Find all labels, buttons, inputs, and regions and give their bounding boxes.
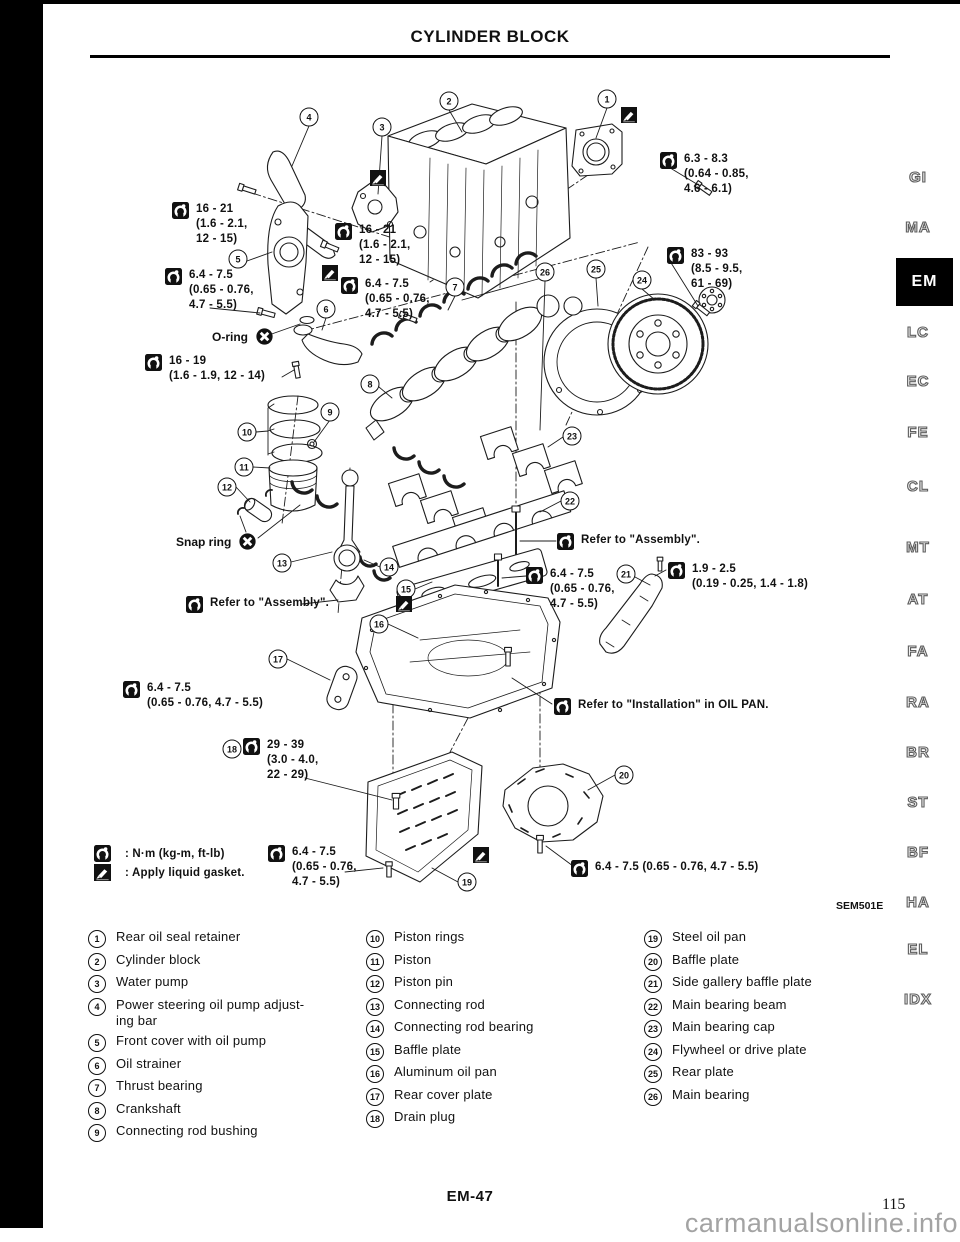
parts-list-item: 12 Piston pin — [366, 974, 644, 993]
section-tab-label: MT — [906, 539, 930, 556]
part-label: Thrust bearing — [116, 1078, 203, 1095]
torque-wrench-icon — [668, 562, 685, 579]
part-number-badge: 11 — [366, 953, 384, 971]
liquid-gasket-icon — [396, 596, 412, 612]
part-number-badge: 22 — [644, 998, 662, 1016]
section-tab: EM — [896, 258, 953, 306]
part-callout: 4 — [300, 108, 319, 127]
part-callout-number: 13 — [277, 558, 287, 568]
torque-spec-label: 6.4 - 7.5 (0.65 - 0.76, 4.7 - 5.5) — [341, 277, 430, 322]
torque-spec-text: 16 - 19 (1.6 - 1.9, 12 - 14) — [169, 354, 265, 384]
parts-list-column-1: 1 Rear oil seal retainer 2 Cylinder bloc… — [88, 929, 366, 1146]
part-label: Baffle plate — [394, 1042, 461, 1059]
part-callout-number: 24 — [637, 275, 647, 285]
liquid-gasket-icon — [621, 107, 637, 123]
part-label: Connecting rod — [394, 997, 485, 1014]
part-callout-number: 4 — [306, 112, 311, 122]
torque-spec-text: 6.4 - 7.5 (0.65 - 0.76, 4.7 - 5.5) — [189, 268, 254, 313]
torque-spec-text: 6.3 - 8.3 (0.64 - 0.85, 4.6 - 6.1) — [684, 152, 749, 197]
page-title: CYLINDER BLOCK — [90, 27, 890, 47]
parts-list-item: 21 Side gallery baffle plate — [644, 974, 944, 993]
part-label: Water pump — [116, 974, 188, 991]
parts-list-item: 17 Rear cover plate — [366, 1087, 644, 1106]
section-tab: ST — [893, 794, 943, 811]
torque-wrench-icon — [571, 860, 588, 877]
torque-spec-label: 6.4 - 7.5 (0.65 - 0.76, 4.7 - 5.5) — [571, 860, 758, 877]
liquid-gasket-icon — [370, 170, 386, 186]
part-callout: 8 — [361, 375, 380, 394]
part-label: Rear cover plate — [394, 1087, 493, 1104]
part-callout-number: 6 — [323, 304, 328, 314]
torque-spec-text: 16 - 21 (1.6 - 2.1, 12 - 15) — [359, 223, 410, 268]
liquid-gasket-icon — [473, 847, 489, 863]
torque-spec-text: 6.4 - 7.5 (0.65 - 0.76, 4.7 - 5.5) — [595, 860, 758, 875]
parts-list-item: 26 Main bearing — [644, 1087, 944, 1106]
part-label: Connecting rod bearing — [394, 1019, 534, 1036]
part-label: Main bearing — [672, 1087, 750, 1104]
part-callout: 23 — [563, 427, 582, 446]
part-number-badge: 4 — [88, 998, 106, 1016]
part-label: Main bearing beam — [672, 997, 787, 1014]
torque-wrench-icon — [94, 845, 111, 862]
part-callout: 12 — [218, 478, 237, 497]
part-label: Cylinder block — [116, 952, 200, 969]
parts-list-item: 5 Front cover with oil pump — [88, 1033, 366, 1052]
torque-wrench-icon — [172, 202, 189, 219]
watermark: carmanualsonline.info — [0, 1208, 958, 1239]
part-callout-number: 23 — [567, 431, 577, 441]
part-callout: 19 — [458, 873, 477, 892]
part-label: Piston — [394, 952, 431, 969]
part-callout: 20 — [615, 766, 634, 785]
section-tab-label: CL — [907, 478, 929, 495]
section-tab: RA — [893, 694, 943, 711]
torque-wrench-icon — [268, 845, 285, 862]
part-callout-number: 17 — [273, 654, 283, 664]
part-note-label: O-ring — [212, 328, 273, 345]
part-callout: 25 — [587, 260, 606, 279]
torque-wrench-icon — [186, 596, 203, 613]
parts-list-item: 16 Aluminum oil pan — [366, 1064, 644, 1083]
part-label: Front cover with oil pump — [116, 1033, 266, 1050]
part-callout: 5 — [229, 250, 248, 269]
part-number-badge: 15 — [366, 1043, 384, 1061]
part-callout-number: 7 — [452, 282, 457, 292]
parts-list-item: 6 Oil strainer — [88, 1056, 366, 1075]
part-number-badge: 2 — [88, 953, 106, 971]
part-number-badge: 19 — [644, 930, 662, 948]
section-tab: BR — [893, 744, 943, 761]
parts-list-item: 23 Main bearing cap — [644, 1019, 944, 1038]
part-callout: 13 — [273, 554, 292, 573]
part-callout: 1 — [598, 90, 617, 109]
part-callout: 26 — [536, 263, 555, 282]
part-number-badge: 26 — [644, 1088, 662, 1106]
section-tab-label: FE — [907, 424, 928, 441]
section-tab-label: EM — [912, 273, 938, 290]
part-number-badge: 1 — [88, 930, 106, 948]
parts-list-item: 24 Flywheel or drive plate — [644, 1042, 944, 1061]
liquid-gasket-icon — [94, 864, 111, 881]
part-callout-number: 5 — [235, 254, 240, 264]
torque-wrench-icon — [526, 567, 543, 584]
parts-list: 1 Rear oil seal retainer 2 Cylinder bloc… — [88, 929, 944, 1146]
torque-wrench-icon — [341, 277, 358, 294]
part-callout: 9 — [321, 403, 340, 422]
torque-wrench-icon — [145, 354, 162, 371]
torque-wrench-icon — [660, 152, 677, 169]
part-callout: 22 — [561, 492, 580, 511]
part-label: Piston rings — [394, 929, 464, 946]
parts-list-column-3: 19 Steel oil pan 20 Baffle plate 21 Side… — [644, 929, 944, 1146]
torque-wrench-icon — [554, 698, 571, 715]
torque-spec-label: 83 - 93 (8.5 - 9.5, 61 - 69) — [667, 247, 742, 292]
torque-spec-label: 16 - 21 (1.6 - 2.1, 12 - 15) — [335, 223, 410, 268]
parts-list-item: 20 Baffle plate — [644, 952, 944, 971]
part-callout-number: 22 — [565, 496, 575, 506]
liquid-gasket-icon — [322, 265, 338, 281]
part-callout: 24 — [633, 271, 652, 290]
section-tab-label: ST — [907, 794, 928, 811]
parts-list-item: 4 Power steering oil pump adjust- ing ba… — [88, 997, 366, 1030]
part-number-badge: 5 — [88, 1034, 106, 1052]
part-label: Aluminum oil pan — [394, 1064, 497, 1081]
parts-list-item: 14 Connecting rod bearing — [366, 1019, 644, 1038]
part-number-badge: 23 — [644, 1020, 662, 1038]
torque-spec-text: Refer to "Assembly". — [210, 596, 329, 611]
section-tab: FA — [893, 643, 943, 660]
scan-edge-top — [0, 0, 960, 4]
part-callout-number: 15 — [401, 584, 411, 594]
part-callout: 18 — [223, 740, 242, 759]
torque-legend-text: : N·m (kg-m, ft-lb) — [125, 848, 245, 860]
part-label: Drain plug — [394, 1109, 455, 1126]
part-callout: 3 — [373, 118, 392, 137]
parts-list-item: 25 Rear plate — [644, 1064, 944, 1083]
part-label: Steel oil pan — [672, 929, 746, 946]
torque-wrench-icon — [557, 533, 574, 550]
part-callout-number: 12 — [222, 482, 232, 492]
parts-list-item: 13 Connecting rod — [366, 997, 644, 1016]
torque-wrench-icon — [667, 247, 684, 264]
part-callout-number: 26 — [540, 267, 550, 277]
parts-list-item: 9 Connecting rod bushing — [88, 1123, 366, 1142]
torque-spec-text: 29 - 39 (3.0 - 4.0, 22 - 29) — [267, 738, 318, 783]
torque-spec-label: 16 - 19 (1.6 - 1.9, 12 - 14) — [145, 354, 265, 384]
torque-spec-label: 29 - 39 (3.0 - 4.0, 22 - 29) — [243, 738, 318, 783]
section-tab: BF — [893, 844, 943, 861]
part-callout: 11 — [235, 458, 254, 477]
part-label: Rear plate — [672, 1064, 734, 1081]
section-tab: HA — [893, 894, 943, 911]
part-number-badge: 7 — [88, 1079, 106, 1097]
torque-wrench-icon — [243, 738, 260, 755]
parts-list-column-2: 10 Piston rings 11 Piston 12 Piston pin … — [366, 929, 644, 1146]
torque-spec-label: 6.4 - 7.5 (0.65 - 0.76, 4.7 - 5.5) — [268, 845, 357, 890]
part-label: Power steering oil pump adjust- ing bar — [116, 997, 304, 1030]
parts-list-item: 3 Water pump — [88, 974, 366, 993]
part-callout-number: 11 — [239, 462, 249, 472]
part-label: Piston pin — [394, 974, 453, 991]
part-number-badge: 9 — [88, 1124, 106, 1142]
section-tab: LC — [893, 324, 943, 341]
torque-spec-label: 6.4 - 7.5 (0.65 - 0.76, 4.7 - 5.5) — [526, 567, 615, 612]
part-callout-number: 18 — [227, 744, 237, 754]
page-code: EM-47 — [390, 1188, 550, 1205]
section-tab: EC — [893, 373, 943, 390]
torque-spec-text: 6.4 - 7.5 (0.65 - 0.76, 4.7 - 5.5) — [147, 681, 263, 711]
section-tab: GI — [893, 169, 943, 186]
torque-spec-label: 16 - 21 (1.6 - 2.1, 12 - 15) — [172, 202, 247, 247]
section-tab-label: MA — [905, 219, 930, 236]
part-number-badge: 8 — [88, 1102, 106, 1120]
part-note-text: O-ring — [212, 330, 248, 344]
part-callout-number: 20 — [619, 770, 629, 780]
torque-spec-text: 6.4 - 7.5 (0.65 - 0.76, 4.7 - 5.5) — [550, 567, 615, 612]
part-callout: 16 — [370, 615, 389, 634]
section-tab: MT — [893, 539, 943, 556]
part-label: Main bearing cap — [672, 1019, 775, 1036]
part-number-badge: 6 — [88, 1057, 106, 1075]
part-callout-number: 2 — [446, 96, 451, 106]
section-tab-label: AT — [908, 591, 929, 608]
parts-list-item: 15 Baffle plate — [366, 1042, 644, 1061]
torque-spec-text: 6.4 - 7.5 (0.65 - 0.76, 4.7 - 5.5) — [292, 845, 357, 890]
torque-spec-label: Refer to "Assembly". — [557, 533, 700, 550]
part-callout: 21 — [617, 565, 636, 584]
part-callout: 14 — [380, 558, 399, 577]
torque-spec-label: 6.4 - 7.5 (0.65 - 0.76, 4.7 - 5.5) — [165, 268, 254, 313]
section-tab: CL — [893, 478, 943, 495]
torque-spec-text: 6.4 - 7.5 (0.65 - 0.76, 4.7 - 5.5) — [365, 277, 430, 322]
part-number-badge: 12 — [366, 975, 384, 993]
torque-spec-text: 83 - 93 (8.5 - 9.5, 61 - 69) — [691, 247, 742, 292]
section-tab-label: RA — [906, 694, 930, 711]
part-callout-number: 9 — [327, 407, 332, 417]
part-callout-number: 8 — [367, 379, 372, 389]
section-tab-label: FA — [907, 643, 928, 660]
part-number-badge: 20 — [644, 953, 662, 971]
part-callout-number: 14 — [384, 562, 394, 572]
part-number-badge: 24 — [644, 1043, 662, 1061]
cross-marker-icon — [239, 533, 256, 550]
part-number-badge: 17 — [366, 1088, 384, 1106]
parts-list-item: 22 Main bearing beam — [644, 997, 944, 1016]
section-tab: AT — [893, 591, 943, 608]
part-number-badge: 16 — [366, 1065, 384, 1083]
torque-spec-text: Refer to "Assembly". — [581, 533, 700, 548]
symbol-legend: : N·m (kg-m, ft-lb) : Apply liquid gaske… — [94, 845, 245, 881]
part-callout-number: 25 — [591, 264, 601, 274]
part-callout: 6 — [317, 300, 336, 319]
section-tab-label: BF — [907, 844, 929, 861]
part-callout-number: 1 — [604, 94, 609, 104]
part-callout-number: 10 — [242, 427, 252, 437]
parts-list-item: 8 Crankshaft — [88, 1101, 366, 1120]
part-label: Crankshaft — [116, 1101, 181, 1118]
torque-spec-label: 6.4 - 7.5 (0.65 - 0.76, 4.7 - 5.5) — [123, 681, 263, 711]
torque-spec-text: 1.9 - 2.5 (0.19 - 0.25, 1.4 - 1.8) — [692, 562, 808, 592]
part-callout-number: 19 — [462, 877, 472, 887]
section-tab-label: EC — [907, 373, 930, 390]
torque-spec-text: 16 - 21 (1.6 - 2.1, 12 - 15) — [196, 202, 247, 247]
section-tab-label: GI — [909, 169, 927, 186]
part-number-badge: 21 — [644, 975, 662, 993]
parts-list-item: 7 Thrust bearing — [88, 1078, 366, 1097]
torque-spec-text: Refer to "Installation" in OIL PAN. — [578, 698, 769, 713]
part-label: Oil strainer — [116, 1056, 181, 1073]
parts-list-item: 18 Drain plug — [366, 1109, 644, 1128]
torque-wrench-icon — [165, 268, 182, 285]
section-tab: FE — [893, 424, 943, 441]
part-callout: 7 — [446, 278, 465, 297]
part-number-badge: 25 — [644, 1065, 662, 1083]
part-callout-number: 3 — [379, 122, 384, 132]
parts-list-item: 11 Piston — [366, 952, 644, 971]
section-tab-label: LC — [907, 324, 929, 341]
part-callout: 2 — [440, 92, 459, 111]
part-label: Side gallery baffle plate — [672, 974, 812, 991]
parts-list-item: 2 Cylinder block — [88, 952, 366, 971]
scan-edge-left — [0, 0, 43, 1228]
title-rule — [90, 55, 890, 58]
cross-marker-icon — [256, 328, 273, 345]
part-number-badge: 18 — [366, 1110, 384, 1128]
section-tab-label: BR — [906, 744, 930, 761]
torque-spec-label: 1.9 - 2.5 (0.19 - 0.25, 1.4 - 1.8) — [668, 562, 808, 592]
part-number-badge: 13 — [366, 998, 384, 1016]
part-note-label: Snap ring — [176, 533, 256, 550]
part-note-text: Snap ring — [176, 535, 231, 549]
part-callout: 17 — [269, 650, 288, 669]
torque-spec-label: Refer to "Installation" in OIL PAN. — [554, 698, 769, 715]
part-number-badge: 14 — [366, 1020, 384, 1038]
part-label: Rear oil seal retainer — [116, 929, 240, 946]
torque-wrench-icon — [123, 681, 140, 698]
part-callout: 10 — [238, 423, 257, 442]
part-number-badge: 3 — [88, 975, 106, 993]
part-label: Connecting rod bushing — [116, 1123, 258, 1140]
part-number-badge: 10 — [366, 930, 384, 948]
parts-list-item: 1 Rear oil seal retainer — [88, 929, 366, 948]
gasket-legend-text: : Apply liquid gasket. — [125, 867, 245, 879]
torque-wrench-icon — [335, 223, 352, 240]
part-label: Baffle plate — [672, 952, 739, 969]
parts-list-item: 19 Steel oil pan — [644, 929, 944, 948]
torque-spec-label: Refer to "Assembly". — [186, 596, 329, 613]
parts-list-item: 10 Piston rings — [366, 929, 644, 948]
part-label: Flywheel or drive plate — [672, 1042, 807, 1059]
part-callout-number: 21 — [621, 569, 631, 579]
section-tab-label: HA — [906, 894, 930, 911]
section-tab: MA — [893, 219, 943, 236]
torque-spec-label: 6.3 - 8.3 (0.64 - 0.85, 4.6 - 6.1) — [660, 152, 749, 197]
part-callout-number: 16 — [374, 619, 384, 629]
figure-code: SEM501E — [836, 900, 883, 912]
